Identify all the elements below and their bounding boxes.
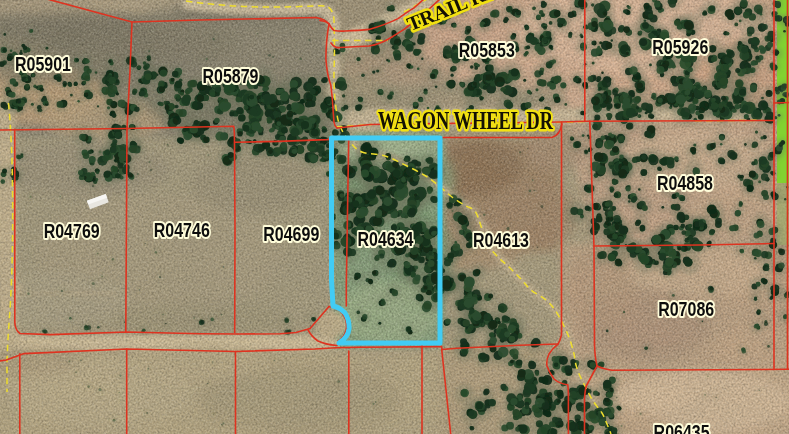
svg-text:R05853: R05853 [459, 39, 515, 61]
svg-text:R04613: R04613 [473, 229, 529, 251]
svg-text:R04634: R04634 [358, 228, 415, 250]
svg-text:R05926: R05926 [652, 36, 708, 58]
svg-text:R07086: R07086 [658, 298, 714, 320]
svg-text:R04769: R04769 [44, 220, 100, 242]
svg-text:R06435: R06435 [654, 421, 710, 434]
svg-text:R04746: R04746 [154, 219, 210, 241]
svg-text:R04699: R04699 [263, 223, 319, 245]
svg-text:R04858: R04858 [657, 172, 713, 194]
svg-text:WAGON WHEEL DR: WAGON WHEEL DR [378, 107, 554, 134]
svg-text:R05901: R05901 [15, 53, 71, 75]
svg-text:R05879: R05879 [203, 65, 259, 87]
